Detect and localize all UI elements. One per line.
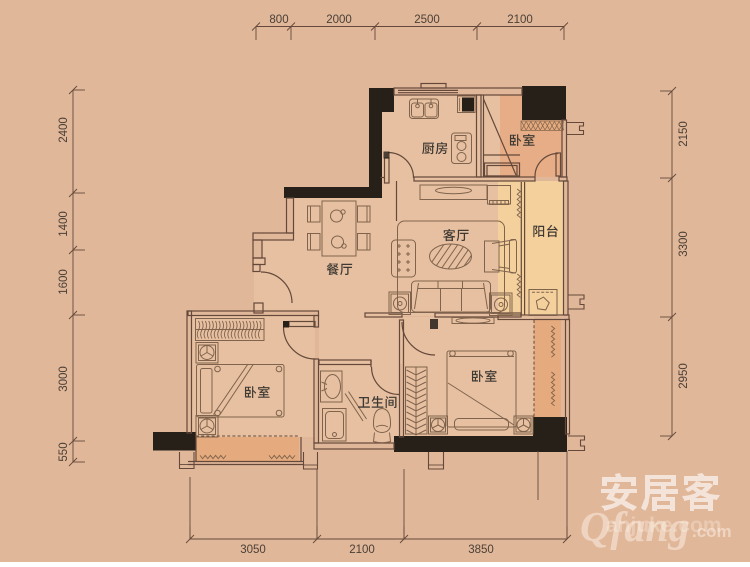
svg-text:1600: 1600 xyxy=(58,269,70,295)
svg-text:1400: 1400 xyxy=(58,211,70,237)
svg-text:3850: 3850 xyxy=(468,544,494,556)
svg-text:3300: 3300 xyxy=(678,231,690,257)
svg-text:2150: 2150 xyxy=(678,121,690,147)
svg-text:2500: 2500 xyxy=(414,14,440,26)
svg-text:3000: 3000 xyxy=(58,366,70,392)
svg-text:2100: 2100 xyxy=(349,544,375,556)
svg-text:.com: .com xyxy=(692,522,732,541)
svg-text:2000: 2000 xyxy=(326,14,352,26)
svg-text:3050: 3050 xyxy=(240,544,266,556)
svg-text:2400: 2400 xyxy=(58,117,70,143)
svg-text:2950: 2950 xyxy=(678,363,690,389)
svg-text:800: 800 xyxy=(269,14,288,26)
svg-text:2100: 2100 xyxy=(507,14,533,26)
svg-text:550: 550 xyxy=(58,442,70,461)
